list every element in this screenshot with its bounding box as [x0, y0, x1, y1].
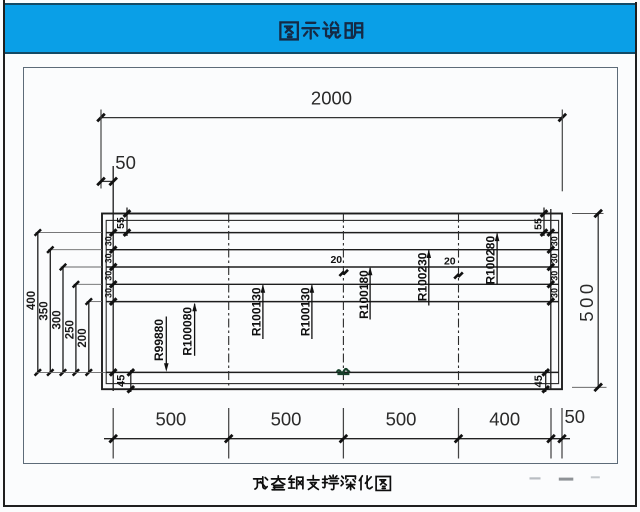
- svg-text:400: 400: [26, 291, 38, 310]
- svg-text:20: 20: [444, 256, 456, 268]
- svg-text:250: 250: [64, 320, 76, 339]
- svg-text:400: 400: [489, 409, 520, 430]
- svg-text:R100130: R100130: [250, 287, 264, 336]
- svg-text:45: 45: [116, 375, 128, 387]
- svg-text:30: 30: [549, 271, 559, 281]
- svg-text:30: 30: [549, 236, 559, 246]
- svg-text:300: 300: [51, 310, 63, 329]
- svg-text:30: 30: [103, 253, 113, 263]
- svg-text:30: 30: [103, 271, 113, 281]
- svg-text:R100080: R100080: [180, 307, 194, 356]
- svg-text:R100230: R100230: [416, 252, 430, 301]
- svg-text:R99880: R99880: [152, 319, 166, 361]
- svg-text:R100180: R100180: [357, 270, 371, 319]
- svg-text:55: 55: [115, 217, 127, 229]
- svg-text:350: 350: [39, 301, 51, 320]
- svg-text:500: 500: [576, 280, 597, 321]
- svg-text:50: 50: [115, 152, 136, 173]
- svg-text:30: 30: [103, 288, 113, 298]
- svg-text:500: 500: [155, 409, 186, 430]
- svg-text:500: 500: [271, 409, 302, 430]
- svg-text:R100130: R100130: [299, 287, 313, 336]
- svg-text:30: 30: [549, 288, 559, 298]
- svg-text:R100280: R100280: [484, 236, 498, 285]
- svg-text:500: 500: [386, 409, 417, 430]
- svg-text:55: 55: [533, 218, 545, 230]
- svg-text:2000: 2000: [311, 88, 352, 109]
- svg-text:30: 30: [103, 236, 113, 246]
- svg-text:200: 200: [77, 328, 89, 347]
- svg-text:20: 20: [330, 254, 342, 266]
- svg-text:30: 30: [549, 253, 559, 263]
- svg-text:50: 50: [565, 406, 586, 427]
- svg-text:45: 45: [533, 375, 545, 387]
